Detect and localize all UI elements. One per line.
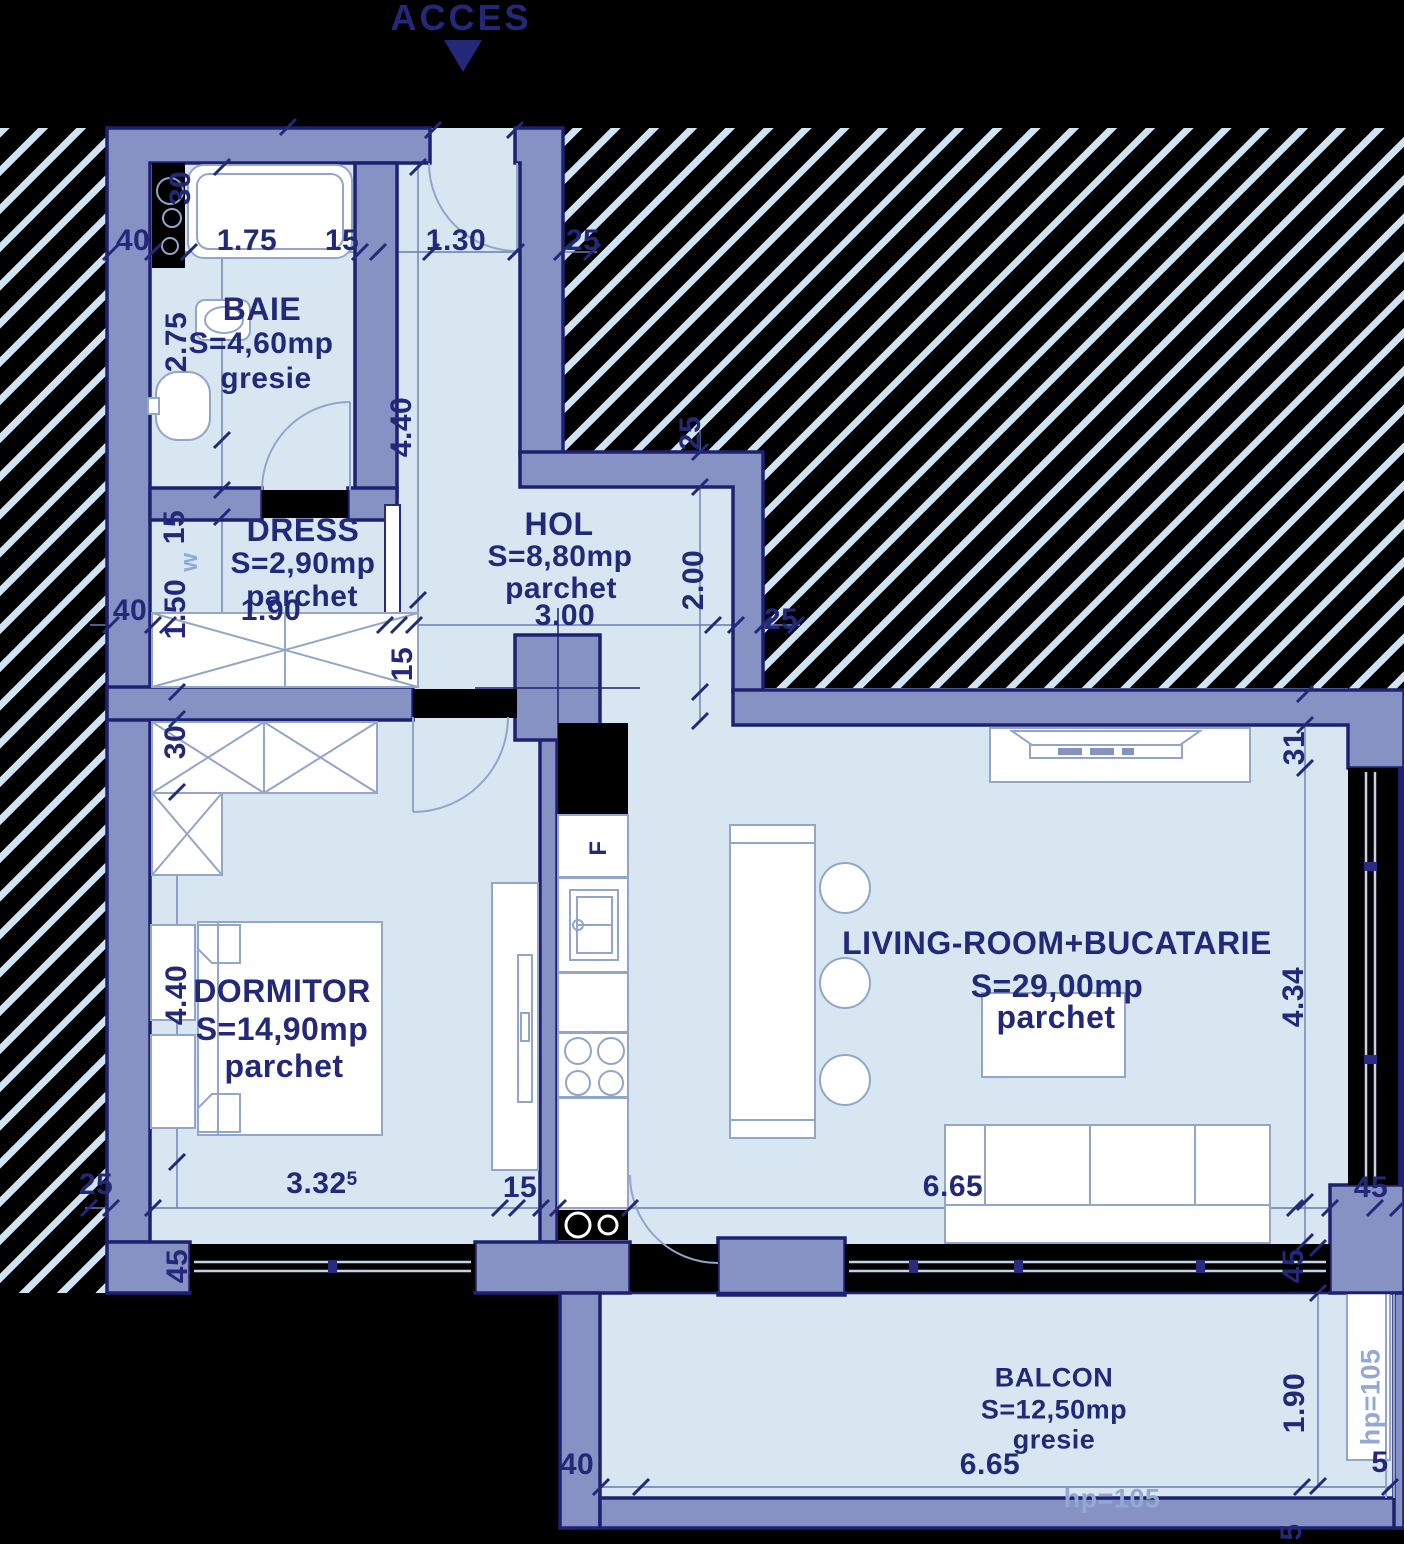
room-area-living: S=29,00mp <box>971 970 1144 1002</box>
dim-dress-wall: 15 <box>160 510 190 544</box>
dim-living-wall-bottom: 45 <box>1279 1249 1309 1283</box>
washer-label: w <box>178 552 202 571</box>
kitchen-counter <box>558 973 628 1032</box>
dim-dorm-width-main: 3.32 <box>286 1167 346 1200</box>
room-floor-balcon: gresie <box>1013 1427 1096 1454</box>
room-name-dress: DRESS <box>247 514 360 546</box>
kitchen-counter <box>558 1098 628 1208</box>
dim-dress-width: 1.90 <box>241 596 301 626</box>
kitchen-tall-cabinet <box>558 723 628 815</box>
room-area-balcon: S=12,50mp <box>981 1397 1127 1424</box>
dim-hol-height: 4.40 <box>387 397 417 457</box>
dim-balcony-edge-right: 5 <box>1371 1448 1388 1478</box>
dim-dorm-width: 3.325 <box>286 1169 357 1199</box>
access-label: ACCES <box>390 0 531 39</box>
room-area-baie: S=4,60mp <box>189 329 334 359</box>
room-floor-living: parchet <box>996 1001 1115 1033</box>
room-name-baie: BAIE <box>223 293 301 325</box>
room-floor-baie: gresie <box>220 364 311 394</box>
dim-dress-height: 1.50 <box>161 579 191 639</box>
wall-balcony-right <box>1394 1293 1404 1528</box>
washbasin <box>156 372 210 440</box>
dim-living-wall-top: 31 <box>1280 731 1310 765</box>
dim-balcony-wall: 40 <box>560 1450 594 1480</box>
room-area-dress: S=2,90mp <box>231 549 376 579</box>
dim-left-wall-bottom: 25 <box>79 1170 113 1200</box>
room-area-dormitor: S=14,90mp <box>196 1013 369 1045</box>
wall-entrance-right <box>515 128 563 455</box>
wall-bottom-mid <box>475 1242 630 1293</box>
dim-hol-wall-right: 25 <box>764 605 798 635</box>
dim-kitchen-wall: 15 <box>503 1173 537 1203</box>
dim-balcony-edge-bottom: 5 <box>1277 1523 1307 1540</box>
dim-baie-wall: 15 <box>325 226 359 256</box>
wall-kitchen-partition <box>540 720 557 1242</box>
dim-balcony-width: 6.65 <box>960 1450 1020 1480</box>
room-name-balcon: BALCON <box>995 1365 1114 1392</box>
plan-drawing <box>0 0 1404 1544</box>
bar-stool <box>820 1055 870 1105</box>
dim-balcony-depth: 1.90 <box>1280 1373 1310 1433</box>
washbasin-tap-icon <box>148 398 159 414</box>
dim-living-wall-right: 45 <box>1354 1173 1388 1203</box>
dim-living-width: 6.65 <box>923 1172 983 1202</box>
sofa <box>945 1125 1270 1243</box>
fridge-label: F <box>587 840 611 855</box>
dim-entry-width: 1.30 <box>426 226 486 256</box>
dim-entry-wall: 25 <box>566 226 600 256</box>
dormitor-door-opening <box>413 689 517 718</box>
floor-plan: ACCES 40 1.75 15 1.30 25 30 2.75 BAIE S=… <box>0 0 1404 1544</box>
dim-living-height: 4.34 <box>1279 967 1309 1027</box>
kitchen-island <box>730 825 815 1138</box>
dim-baie-height: 2.75 <box>162 312 192 372</box>
dim-dorm-window-wall: 45 <box>163 1249 193 1283</box>
right-window <box>1348 768 1398 1185</box>
dim-left-wall-top: 40 <box>116 226 150 256</box>
dim-hol-right-height: 2.00 <box>679 550 709 610</box>
dim-hol-wall-top: 25 <box>676 416 706 450</box>
room-name-living: LIVING-ROOM+BUCATARIE <box>842 927 1272 959</box>
parapet-height-side: hp=105 <box>1358 1349 1385 1446</box>
dim-dorm-height: 4.40 <box>162 965 192 1025</box>
dim-dorm-closet: 30 <box>161 725 191 759</box>
dim-shaft-depth: 30 <box>166 171 196 205</box>
parapet-height-bottom: hp=105 <box>1064 1486 1161 1513</box>
room-floor-dormitor: parchet <box>224 1050 343 1082</box>
dim-baie-width: 1.75 <box>217 226 277 256</box>
dim-dorm-door: 15 <box>388 647 418 681</box>
bar-stool <box>820 958 870 1008</box>
nightstand <box>151 1035 195 1128</box>
dim-dorm-width-sup: 5 <box>347 1169 358 1190</box>
dim-left-wall-mid: 40 <box>113 596 147 626</box>
room-area-hol: S=8,80mp <box>488 542 633 572</box>
balcony-door-leaf <box>718 1238 845 1295</box>
room-name-hol: HOL <box>524 508 593 540</box>
bar-stool <box>820 863 870 913</box>
room-name-dormitor: DORMITOR <box>193 975 371 1007</box>
wall-dress-bottom <box>107 687 413 720</box>
dim-hol-width: 3.00 <box>535 601 595 631</box>
